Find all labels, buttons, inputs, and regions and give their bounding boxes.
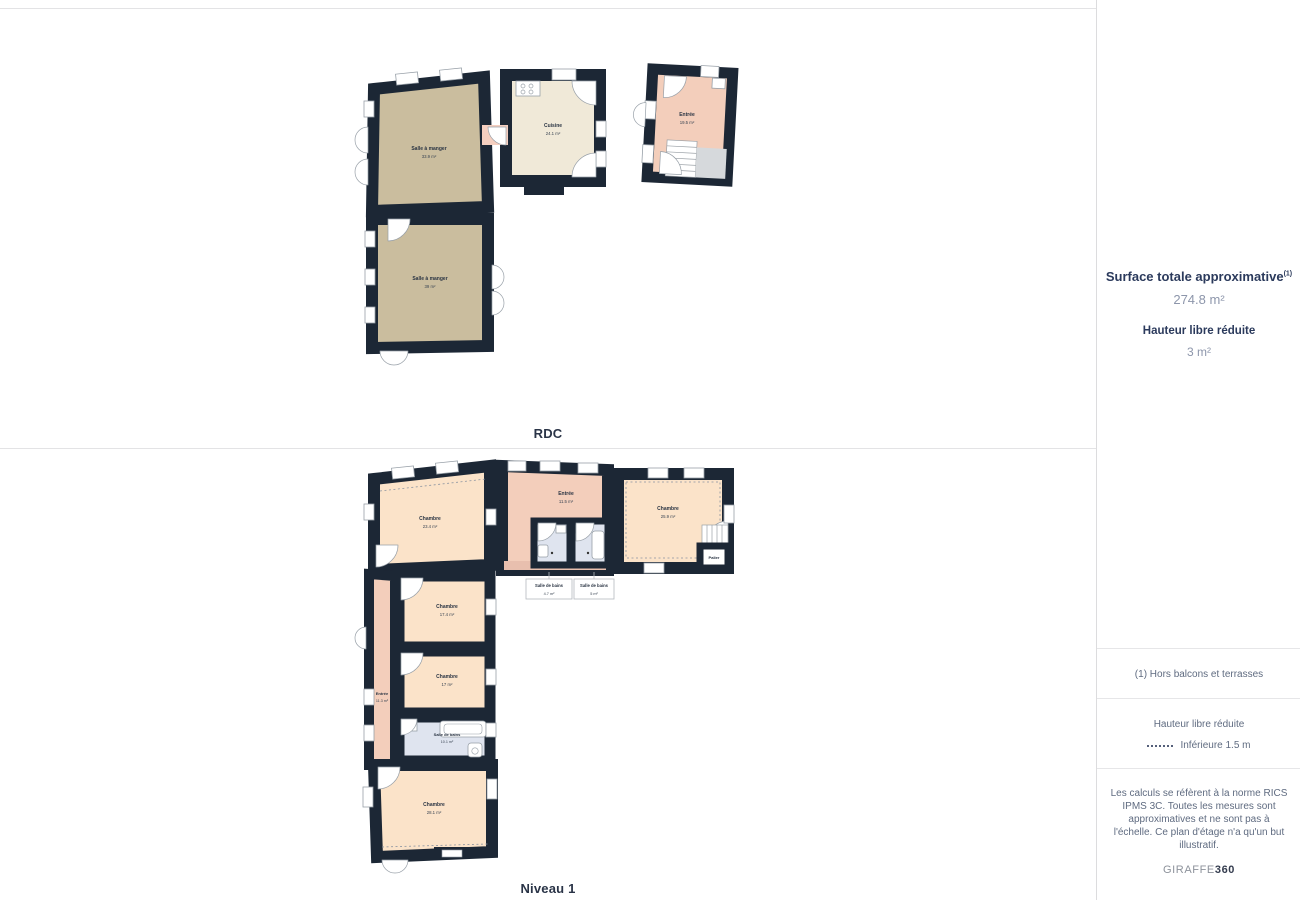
- room-label: Cuisine: [544, 123, 562, 129]
- room-area: 25.9 m²: [661, 514, 676, 519]
- footnote-section: (1) Hors balcons et terrasses: [1097, 648, 1300, 698]
- surface-total-value: 274.8 m²: [1097, 292, 1300, 307]
- toilet-icon: [468, 743, 482, 757]
- disclaimer-section: Les calculs se réfèrent à la norme RICS …: [1097, 768, 1300, 900]
- page: Salle à manger 33.9 m² Cuisine 24.1 m² E…: [0, 0, 1300, 900]
- room-area: 11.5 m²: [559, 499, 574, 504]
- room-landing: [700, 525, 728, 568]
- room-area: 5 m²: [590, 592, 598, 596]
- floor-label-rdc: RDC: [0, 426, 1096, 441]
- floor-plans-area: Salle à manger 33.9 m² Cuisine 24.1 m² E…: [0, 0, 1096, 900]
- floor-plan-niveau1: Salle de bains 4.7 m² Salle de bains 5 m…: [0, 449, 1096, 900]
- stove-icon: [516, 81, 540, 96]
- disclaimer-text: Les calculs se réfèrent à la norme RICS …: [1109, 787, 1289, 852]
- brand-number: 360: [1215, 864, 1235, 876]
- surface-summary: Surface totale approximative(1) 274.8 m²…: [1097, 269, 1300, 359]
- giraffe360-logo: GIRAFFE360: [1097, 864, 1300, 876]
- room-area: 39 m²: [425, 284, 437, 289]
- footnote-ref: (1): [1284, 271, 1293, 278]
- chimney: [434, 847, 470, 859]
- floor-label-niveau1: Niveau 1: [0, 881, 1096, 896]
- room-label: Salle de bains: [580, 583, 609, 588]
- room-label: Chambre: [657, 506, 679, 512]
- room-label: Entrée: [376, 691, 389, 696]
- room-label: Entrée: [558, 491, 574, 497]
- legend-label: Inférieure 1.5 m: [1180, 740, 1250, 751]
- legend-title: Hauteur libre réduite: [1097, 719, 1300, 730]
- room-dining-1: [372, 77, 488, 211]
- room-area: 10.1 m²: [441, 740, 454, 744]
- dotted-line-icon: [1147, 745, 1173, 747]
- room-label: Salle de bains: [535, 583, 564, 588]
- summary-sidebar: Surface totale approximative(1) 274.8 m²…: [1096, 0, 1300, 900]
- room-label: Palier: [709, 555, 720, 560]
- brand-name: GIRAFFE: [1163, 864, 1215, 876]
- room-label: Chambre: [436, 604, 458, 610]
- panel-niveau1: Salle de bains 4.7 m² Salle de bains 5 m…: [0, 449, 1096, 900]
- room-label: Chambre: [423, 802, 445, 808]
- room-area: 28.1 m²: [427, 810, 442, 815]
- room-area: 19.5 m²: [680, 120, 695, 125]
- room-label: Salle à manger: [411, 146, 446, 152]
- corridor-connector: [482, 125, 508, 145]
- room-area: 17.4 m²: [440, 612, 455, 617]
- surface-total-title: Surface totale approximative(1): [1097, 269, 1300, 284]
- room-area: 4.7 m²: [544, 592, 555, 596]
- room-area: 23.4 m²: [423, 524, 438, 529]
- room-bathroom-5: [572, 521, 608, 565]
- callout-bathroom-5: Salle de bains 5 m²: [574, 572, 614, 599]
- legend-section: Hauteur libre réduite Inférieure 1.5 m: [1097, 698, 1300, 768]
- panel-rdc: Salle à manger 33.9 m² Cuisine 24.1 m² E…: [0, 8, 1096, 449]
- room-area: 17 m²: [442, 682, 454, 687]
- reduced-height-value: 3 m²: [1097, 345, 1300, 359]
- reduced-height-title: Hauteur libre réduite: [1097, 325, 1300, 337]
- room-label: Salle à manger: [412, 276, 447, 282]
- room-label: Salle de bains: [434, 732, 461, 737]
- room-area: 33.9 m²: [422, 154, 437, 159]
- room-area: 24.1 m²: [546, 131, 561, 136]
- room-label: Chambre: [419, 516, 441, 522]
- room-area: 11.3 m²: [376, 699, 389, 703]
- room-label: Chambre: [436, 674, 458, 680]
- landing-area: [695, 147, 727, 179]
- floor-plan-rdc: Salle à manger 33.9 m² Cuisine 24.1 m² E…: [0, 9, 1096, 450]
- callout-bathroom-4-7: Salle de bains 4.7 m²: [526, 572, 572, 599]
- footnote-text: (1) Hors balcons et terrasses: [1097, 669, 1300, 680]
- room-label: Entrée: [679, 112, 695, 118]
- room-bathroom-4-7: [534, 521, 570, 565]
